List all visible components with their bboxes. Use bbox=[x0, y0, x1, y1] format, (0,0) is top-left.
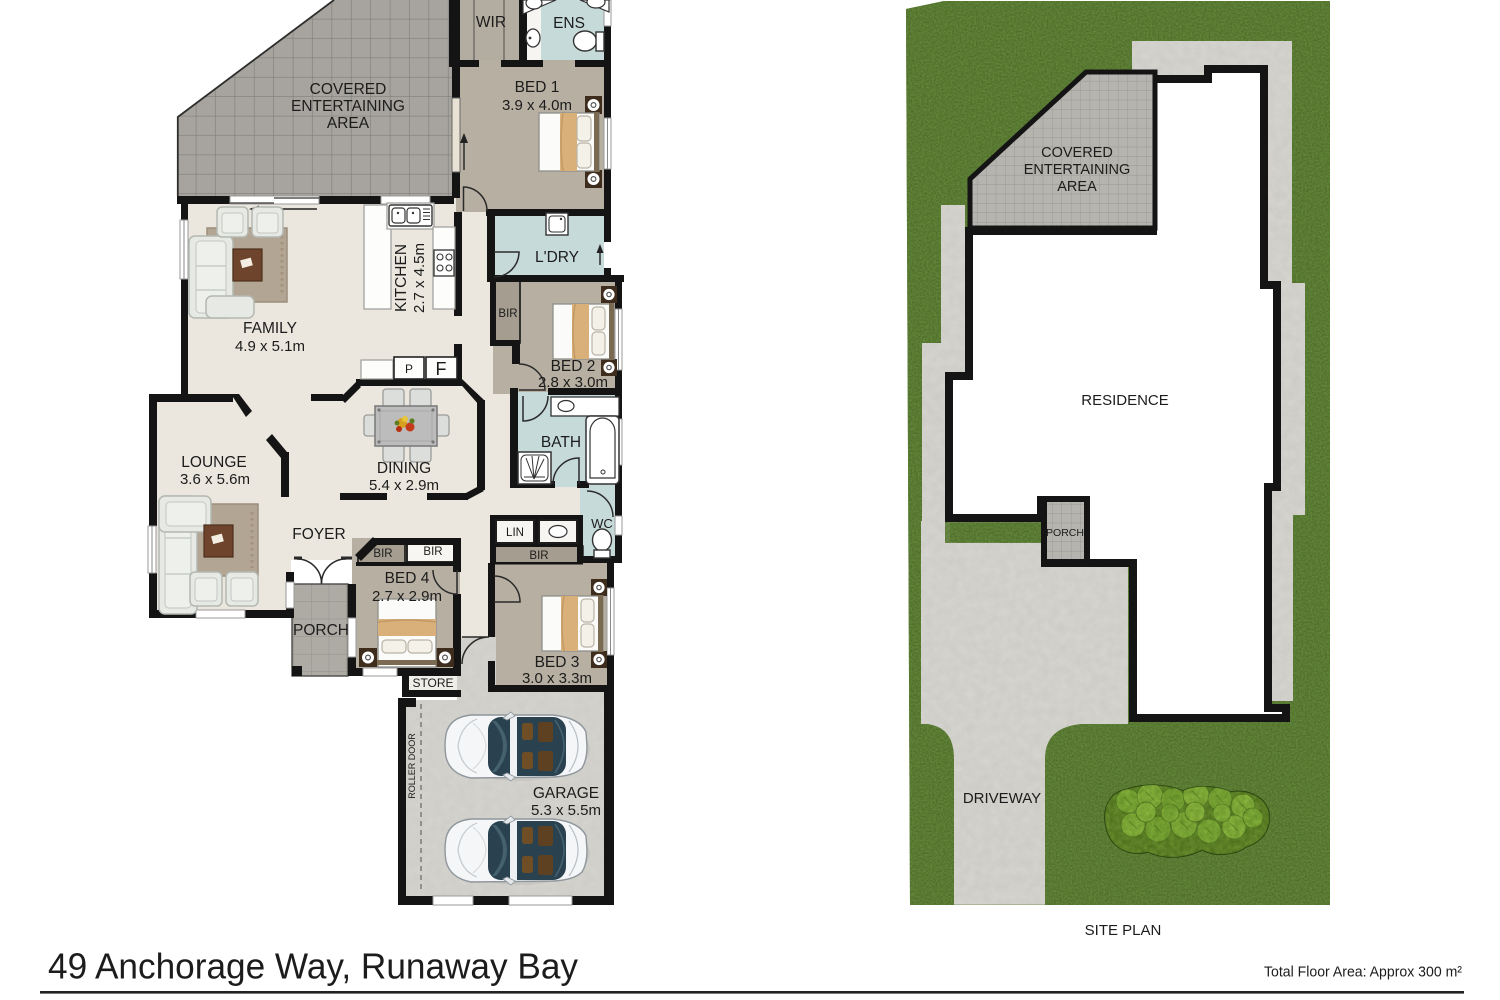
svg-text:WIR: WIR bbox=[476, 14, 506, 31]
svg-text:ROLLER DOOR: ROLLER DOOR bbox=[407, 733, 417, 799]
svg-text:DRIVEWAY: DRIVEWAY bbox=[963, 790, 1041, 807]
svg-text:L'DRY: L'DRY bbox=[535, 249, 579, 266]
svg-text:BIR: BIR bbox=[373, 548, 392, 560]
svg-text:RESIDENCE: RESIDENCE bbox=[1081, 392, 1169, 409]
svg-text:3.0 x 3.3m: 3.0 x 3.3m bbox=[522, 670, 592, 687]
svg-text:BIR: BIR bbox=[529, 550, 548, 562]
svg-text:FOYER: FOYER bbox=[292, 526, 345, 543]
svg-text:BIR: BIR bbox=[423, 546, 442, 558]
svg-text:ENTERTAINING: ENTERTAINING bbox=[291, 98, 405, 115]
svg-text:ENS: ENS bbox=[553, 15, 585, 32]
svg-text:BED 4: BED 4 bbox=[385, 570, 430, 587]
svg-text:COVERED: COVERED bbox=[310, 81, 387, 98]
svg-text:3.9 x 4.0m: 3.9 x 4.0m bbox=[502, 97, 572, 114]
svg-text:AREA: AREA bbox=[327, 115, 370, 132]
svg-text:WC: WC bbox=[591, 516, 613, 531]
svg-text:DINING: DINING bbox=[377, 460, 431, 477]
svg-text:KITCHEN: KITCHEN bbox=[393, 244, 410, 312]
svg-text:PORCH: PORCH bbox=[293, 622, 349, 639]
svg-text:GARAGE: GARAGE bbox=[533, 785, 599, 802]
svg-text:4.9 x 5.1m: 4.9 x 5.1m bbox=[235, 338, 305, 355]
svg-text:2.8 x 3.0m: 2.8 x 3.0m bbox=[538, 374, 608, 391]
svg-text:3.6 x 5.6m: 3.6 x 5.6m bbox=[180, 471, 250, 488]
svg-text:BED 1: BED 1 bbox=[515, 79, 560, 96]
svg-text:STORE: STORE bbox=[412, 676, 453, 690]
svg-text:FAMILY: FAMILY bbox=[243, 320, 297, 337]
svg-text:5.3 x 5.5m: 5.3 x 5.5m bbox=[531, 802, 601, 819]
svg-text:PORCH: PORCH bbox=[1046, 527, 1084, 539]
svg-text:F: F bbox=[436, 359, 447, 379]
svg-text:5.4 x 2.9m: 5.4 x 2.9m bbox=[369, 477, 439, 494]
svg-text:P: P bbox=[405, 362, 413, 376]
svg-text:2.7 x 4.5m: 2.7 x 4.5m bbox=[411, 243, 428, 313]
svg-text:COVERED: COVERED bbox=[1041, 145, 1113, 161]
svg-text:BATH: BATH bbox=[541, 434, 581, 451]
svg-text:Total Floor Area: Approx 300 m: Total Floor Area: Approx 300 m² bbox=[1264, 964, 1462, 981]
svg-text:AREA: AREA bbox=[1057, 179, 1097, 195]
svg-text:2.7 x 2.9m: 2.7 x 2.9m bbox=[372, 588, 442, 605]
svg-text:BED 2: BED 2 bbox=[551, 358, 596, 375]
svg-text:SITE PLAN: SITE PLAN bbox=[1085, 922, 1162, 939]
svg-text:LIN: LIN bbox=[506, 527, 524, 539]
svg-text:ENTERTAINING: ENTERTAINING bbox=[1024, 162, 1131, 178]
svg-text:LOUNGE: LOUNGE bbox=[181, 454, 246, 471]
svg-text:BIR: BIR bbox=[498, 308, 517, 320]
svg-text:49 Anchorage Way, Runaway Bay: 49 Anchorage Way, Runaway Bay bbox=[48, 946, 578, 987]
svg-text:BED 3: BED 3 bbox=[535, 654, 580, 671]
